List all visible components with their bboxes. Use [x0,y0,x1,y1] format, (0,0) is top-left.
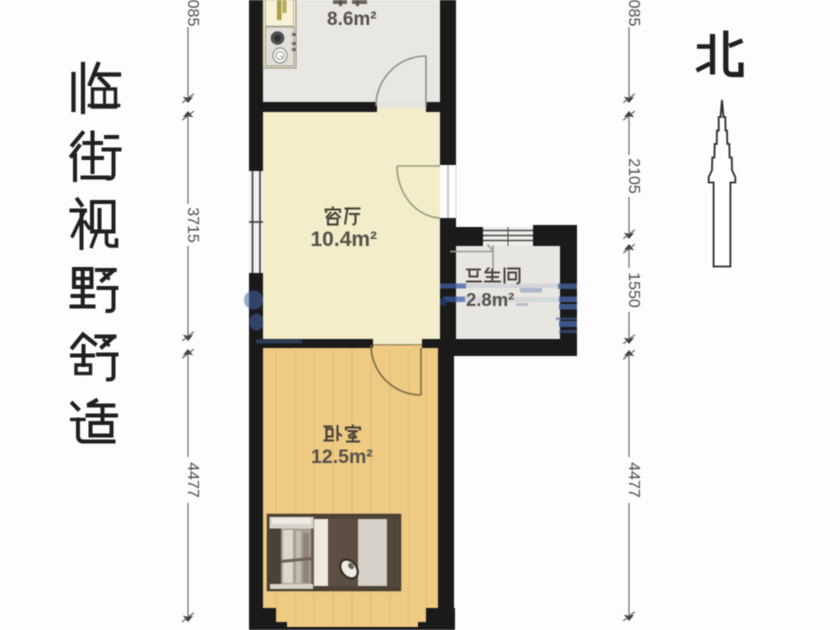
svg-text:4477: 4477 [184,462,201,498]
svg-text:3715: 3715 [184,207,201,243]
svg-text:2.8m²: 2.8m² [466,289,514,310]
svg-text:4477: 4477 [625,462,642,498]
svg-text:085: 085 [184,0,201,26]
svg-text:8.6m²: 8.6m² [327,9,377,30]
svg-text:10.4m²: 10.4m² [311,228,378,251]
svg-text:12.5m²: 12.5m² [311,446,373,468]
svg-text:1550: 1550 [625,272,642,308]
svg-text:2105: 2105 [625,158,642,194]
svg-text:085: 085 [625,0,642,26]
